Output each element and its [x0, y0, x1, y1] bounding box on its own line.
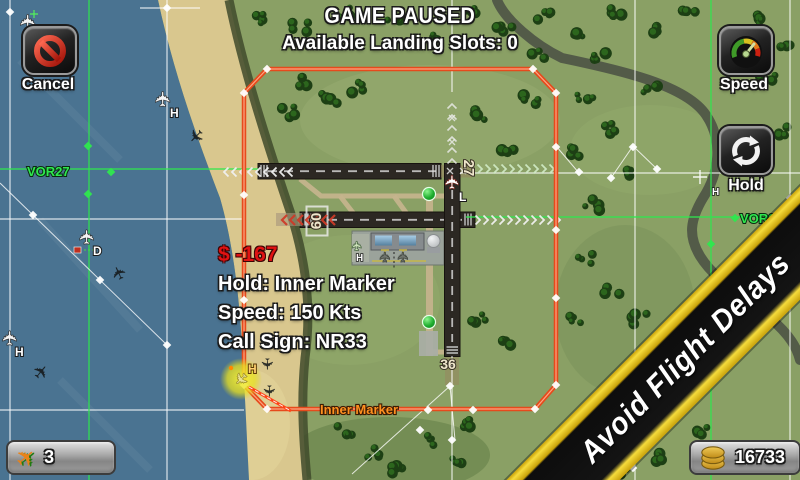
flight-callsign-info: Call Sign: NR33 — [218, 331, 395, 354]
runway-27-number: 27 — [460, 160, 477, 177]
no-entry-icon — [31, 32, 69, 70]
speed-button[interactable] — [719, 26, 773, 75]
radar-dome — [427, 235, 440, 248]
vor-west-label: VOR27 — [27, 164, 70, 179]
flight-cost: $ -167 — [218, 243, 395, 267]
plane-icon[interactable]: ✈ — [0, 330, 22, 346]
plane-label: H — [15, 345, 24, 359]
plane-icon[interactable]: ✈ — [151, 91, 175, 108]
pad — [419, 331, 438, 356]
waypoint-dot — [423, 188, 436, 201]
circular-arrows-icon — [728, 133, 764, 169]
flight-hold-info: Hold: Inner Marker — [218, 273, 395, 296]
speed-button-label: Speed — [699, 76, 789, 94]
plane-icon[interactable]: ✈ — [259, 384, 278, 397]
cancel-button-label: Cancel — [3, 76, 93, 94]
coin-counter-badge: 16733 — [689, 440, 800, 475]
hold-button[interactable] — [719, 126, 773, 175]
plane-label: L — [459, 190, 466, 204]
plane-icon[interactable]: ✈ — [442, 174, 463, 189]
plane-counter-badge: ✈ 3 — [6, 440, 116, 475]
plane-label: H — [170, 106, 179, 120]
plane-icon[interactable]: ✈ — [77, 229, 99, 245]
runway-36-number: 36 — [440, 356, 456, 372]
waypoint-dot — [423, 316, 436, 329]
runway-09-number: 09 — [307, 213, 324, 230]
plane-icon[interactable]: ✈ — [257, 357, 276, 370]
page-title: GAME PAUSED — [0, 3, 800, 29]
hold-button-label: Hold — [701, 177, 791, 195]
landing-slots-status: Available Landing Slots: 0 — [0, 33, 800, 55]
gauge-icon — [727, 32, 765, 70]
plane-label: H — [248, 362, 257, 376]
plane-icon: ✈ — [11, 442, 42, 473]
coin-count: 16733 — [735, 447, 785, 468]
game-screen: ✈✈✈✈✈✈✈✈✈✈✈✈✈✈ VOR27 VOR09 27 09 36 Inne… — [0, 0, 800, 480]
flight-speed-info: Speed: 150 Kts — [218, 302, 395, 325]
flight-info-panel: $ -167 Hold: Inner Marker Speed: 150 Kts… — [218, 243, 395, 354]
plane-icon[interactable]: ✈ — [397, 251, 412, 262]
coins-icon — [699, 445, 727, 471]
plane-label: D — [93, 244, 102, 258]
plane-count: 3 — [44, 447, 54, 468]
inner-marker-label: Inner Marker — [320, 402, 398, 417]
cancel-button[interactable] — [23, 26, 77, 75]
